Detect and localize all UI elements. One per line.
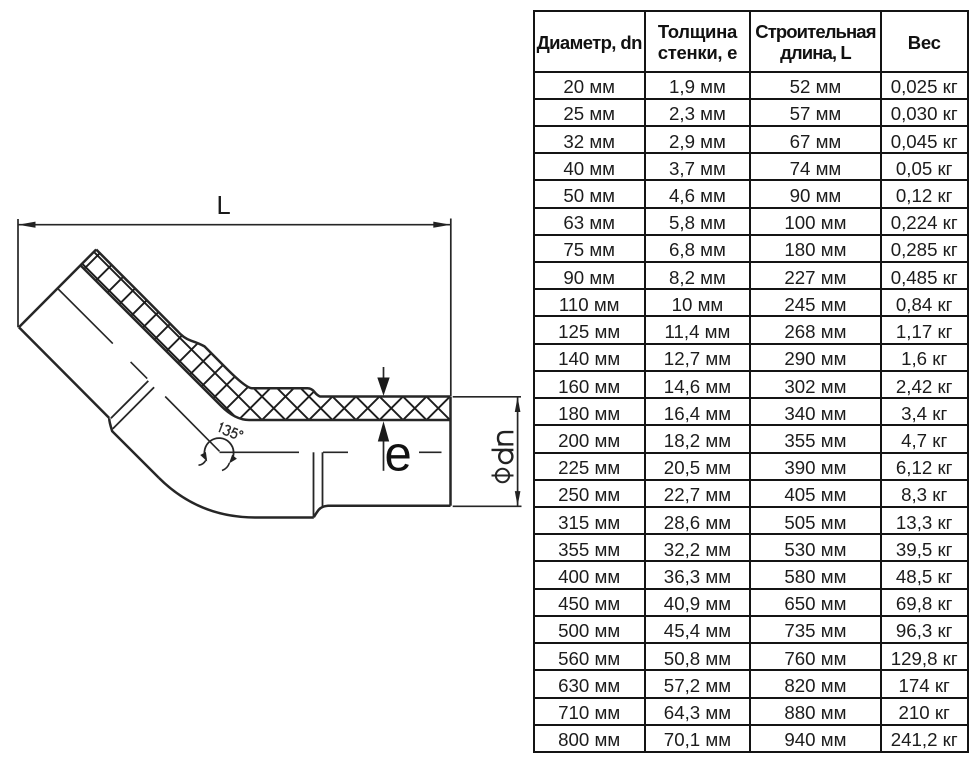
svg-text:L: L xyxy=(217,192,231,220)
svg-text:e: e xyxy=(385,428,412,482)
